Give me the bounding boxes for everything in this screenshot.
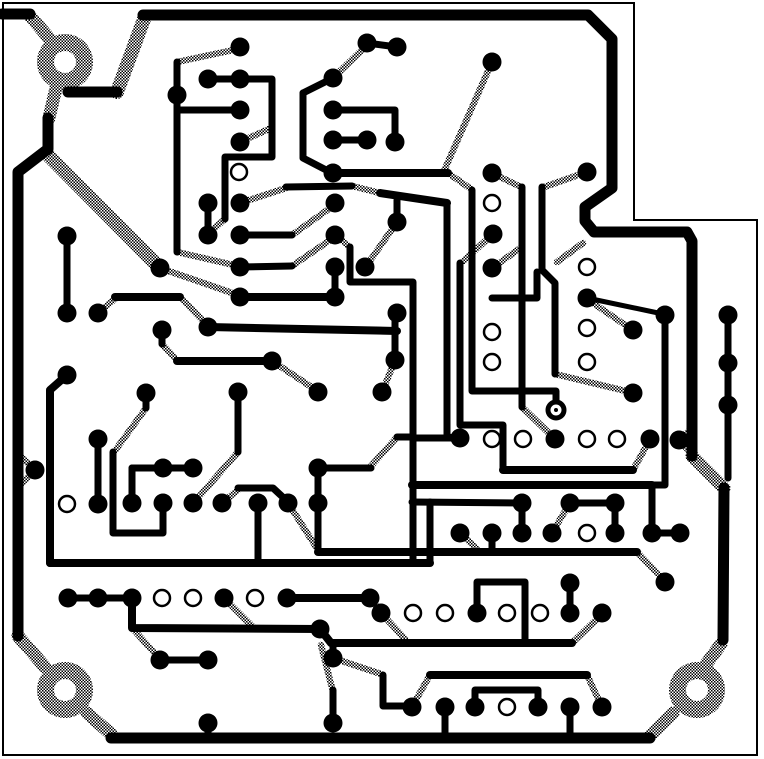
via	[484, 431, 500, 447]
trace	[542, 187, 555, 374]
via	[579, 320, 595, 336]
pad	[151, 259, 170, 278]
via	[484, 195, 500, 211]
pad	[324, 714, 343, 733]
pad	[671, 524, 690, 543]
pad	[213, 494, 232, 513]
via	[579, 259, 595, 275]
pad	[326, 258, 345, 277]
pad	[483, 53, 502, 72]
pad	[436, 698, 455, 717]
pad	[168, 86, 187, 105]
pad	[154, 494, 173, 513]
pad	[358, 131, 377, 150]
pad	[483, 164, 502, 183]
pad	[483, 259, 502, 278]
pad	[199, 70, 218, 89]
pad	[184, 459, 203, 478]
pad	[656, 573, 675, 592]
hatched-trace	[557, 243, 583, 262]
donut-pad-center	[554, 408, 558, 412]
pad	[229, 383, 248, 402]
mounting-hole-drill	[54, 679, 76, 701]
hatched-trace	[177, 49, 238, 62]
edge-hatched-trace	[46, 153, 160, 268]
pad	[231, 133, 250, 152]
pad	[153, 321, 172, 340]
via	[484, 354, 500, 370]
pad	[199, 226, 218, 245]
pad	[561, 604, 580, 623]
pad	[231, 38, 250, 57]
hatched-trace	[555, 374, 630, 392]
pad	[326, 226, 345, 245]
pad	[578, 163, 597, 182]
pad	[215, 589, 234, 608]
pad	[543, 524, 562, 543]
pad	[309, 494, 328, 513]
pad	[372, 604, 391, 623]
pad	[309, 459, 328, 478]
pad	[58, 366, 77, 385]
via	[247, 590, 263, 606]
via	[499, 699, 515, 715]
hatched-trace	[160, 268, 238, 295]
trace	[320, 629, 572, 643]
pad	[483, 524, 502, 543]
hatched-trace	[444, 62, 492, 171]
pad	[89, 304, 108, 323]
via	[185, 590, 201, 606]
pad	[199, 651, 218, 670]
pad	[513, 494, 532, 513]
edge-hatched-trace	[87, 713, 111, 734]
pad	[386, 351, 405, 370]
pad	[199, 318, 218, 337]
pad	[279, 494, 298, 513]
pad	[593, 604, 612, 623]
trace	[380, 193, 447, 203]
pad	[309, 383, 328, 402]
pad	[26, 461, 45, 480]
pad	[184, 494, 203, 513]
pad	[624, 321, 643, 340]
pad	[466, 698, 485, 717]
pad	[199, 714, 218, 733]
via	[515, 431, 531, 447]
pad	[231, 194, 250, 213]
via	[532, 605, 548, 621]
pad	[311, 620, 330, 639]
pad	[324, 164, 343, 183]
pad	[529, 698, 548, 717]
pad	[123, 494, 142, 513]
pad	[656, 306, 675, 325]
pad	[513, 524, 532, 543]
edge-hatched-trace	[117, 19, 144, 92]
pad	[719, 306, 738, 325]
pad	[643, 524, 662, 543]
hatched-trace	[371, 437, 397, 466]
pad	[324, 69, 343, 88]
pad	[59, 589, 78, 608]
mounting-hole-drill	[54, 51, 76, 73]
pad	[593, 698, 612, 717]
via	[405, 605, 421, 621]
pad	[58, 304, 77, 323]
pad	[89, 589, 108, 608]
hatched-trace	[292, 238, 333, 266]
pad	[561, 698, 580, 717]
pad	[231, 70, 250, 89]
pad	[231, 226, 250, 245]
hatched-trace	[162, 344, 176, 359]
pad	[468, 604, 487, 623]
pad	[403, 698, 422, 717]
pad	[231, 101, 250, 120]
pad	[324, 649, 343, 668]
trace	[653, 315, 665, 485]
pad	[578, 289, 597, 308]
pad	[386, 133, 405, 152]
hatched-trace	[114, 408, 146, 452]
pad	[326, 288, 345, 307]
via	[154, 590, 170, 606]
via	[484, 324, 500, 340]
pad	[373, 383, 392, 402]
trace	[383, 675, 408, 706]
edge-trace	[723, 488, 724, 640]
pad	[388, 304, 407, 323]
pad	[356, 258, 375, 277]
pad	[641, 430, 660, 449]
pad	[719, 354, 738, 373]
mounting-hole-drill	[686, 679, 708, 701]
edge-hatched-trace	[30, 16, 49, 38]
pad	[89, 430, 108, 449]
pad	[546, 430, 565, 449]
pad	[624, 384, 643, 403]
pad	[719, 396, 738, 415]
via	[579, 525, 595, 541]
trace	[412, 502, 522, 503]
pad	[388, 38, 407, 57]
pad	[231, 288, 250, 307]
edge-hatched-trace	[704, 644, 721, 667]
via	[579, 431, 595, 447]
pad	[137, 384, 156, 403]
pad	[89, 495, 108, 514]
trace	[286, 186, 352, 187]
pad	[670, 431, 689, 450]
via	[579, 354, 595, 370]
edge-hatched-trace	[650, 713, 673, 736]
trace	[208, 327, 397, 331]
pad	[263, 352, 282, 371]
pad	[123, 589, 142, 608]
via	[609, 431, 625, 447]
edge-trace-layer	[2, 14, 724, 738]
pad	[154, 459, 173, 478]
trace	[350, 247, 413, 563]
hatched-trace	[448, 173, 471, 189]
pad	[151, 651, 170, 670]
trace	[447, 203, 458, 438]
pad	[199, 194, 218, 213]
via	[59, 496, 75, 512]
via	[437, 605, 453, 621]
edge-hatched-trace	[18, 636, 45, 667]
pad	[324, 131, 343, 150]
pad	[231, 258, 250, 277]
pad	[606, 494, 625, 513]
pad	[249, 494, 268, 513]
edge-trace	[18, 118, 48, 636]
hatched-trace	[177, 252, 238, 266]
via	[499, 605, 515, 621]
pad	[58, 227, 77, 246]
edge-hatched-trace	[692, 456, 724, 488]
pad	[451, 429, 470, 448]
pad	[388, 213, 407, 232]
pad	[606, 524, 625, 543]
pad	[326, 194, 345, 213]
pad	[561, 574, 580, 593]
pad	[561, 494, 580, 513]
via	[231, 164, 247, 180]
trace	[492, 272, 537, 298]
pcb-layout-canvas	[0, 0, 764, 759]
pad	[451, 524, 470, 543]
pad	[484, 225, 503, 244]
pad	[324, 101, 343, 120]
pcb-artwork-svg	[0, 0, 764, 759]
pad	[358, 34, 377, 53]
trace	[50, 375, 67, 563]
hatched-trace	[352, 186, 380, 193]
pad	[278, 589, 297, 608]
